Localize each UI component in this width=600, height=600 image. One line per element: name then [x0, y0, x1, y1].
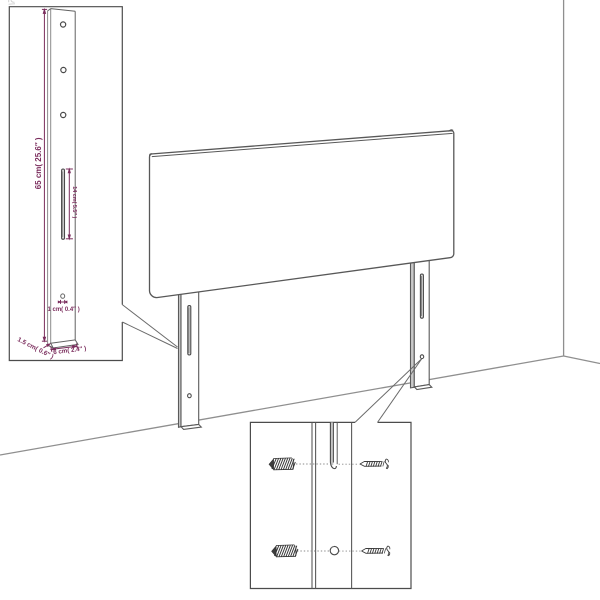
svg-text:1 cm( 0.4″ ): 1 cm( 0.4″ ) [48, 307, 80, 313]
svg-text:65 cm( 25.6″ ): 65 cm( 25.6″ ) [34, 137, 43, 189]
svg-text:14 cm( 5.5″ ): 14 cm( 5.5″ ) [71, 186, 77, 218]
